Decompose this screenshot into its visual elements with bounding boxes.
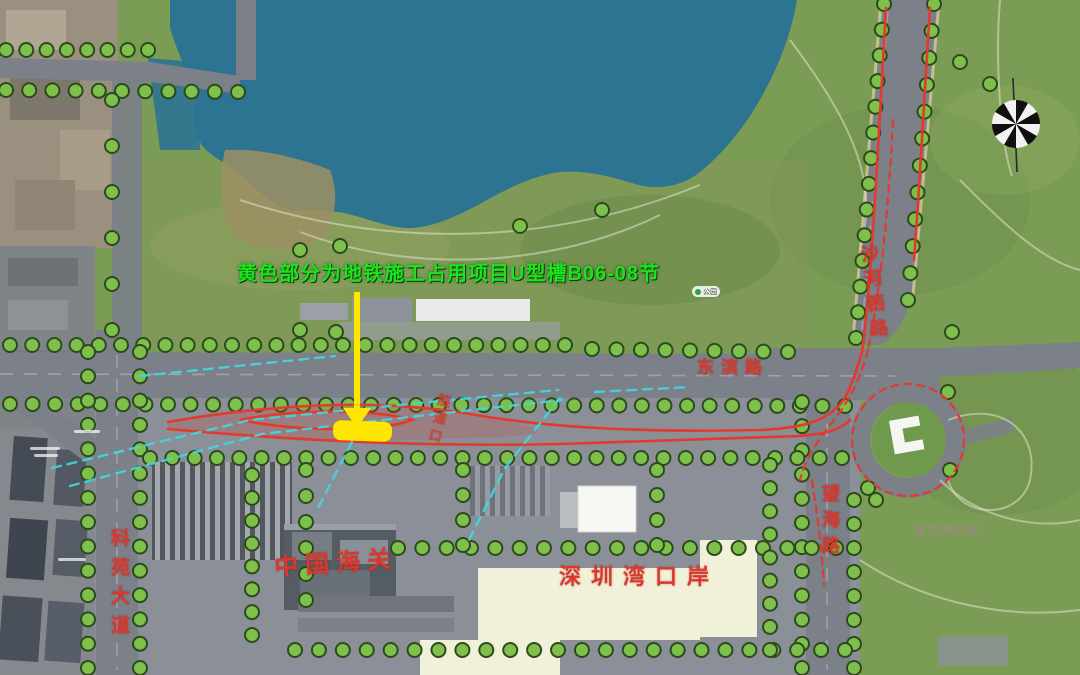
road-label-wanghai: 望海路 xyxy=(817,484,843,562)
tiny-poi-label xyxy=(74,430,100,433)
place-label-shenzhen-bay-port: 深圳湾口岸 xyxy=(559,559,719,591)
tiny-poi-label xyxy=(58,558,86,561)
u-trough-highlight xyxy=(333,420,393,442)
road-label-keyuan: 科苑大道 xyxy=(105,528,132,644)
tiny-poi-label xyxy=(30,447,60,450)
construction-site xyxy=(0,0,118,248)
tiny-poi-label xyxy=(34,454,58,457)
satellite-basemap xyxy=(0,0,1080,675)
park-poi-icon xyxy=(695,289,701,295)
satellite-plan-map: 黄色部分为地铁施工占用项目U型槽B06-08节 东滨路 沙河西路 望海路 科苑大… xyxy=(0,0,1080,675)
arrow-shaft xyxy=(354,292,360,410)
park-poi-marker: 公园 xyxy=(692,286,720,297)
road-label-dongbin: 东滨路 xyxy=(697,353,769,378)
place-label-shenzhen-bay-park: 深圳湾公园 xyxy=(915,521,980,537)
construction-note: 黄色部分为地铁施工占用项目U型槽B06-08节 xyxy=(237,257,660,286)
park-poi-label: 公园 xyxy=(703,287,717,297)
